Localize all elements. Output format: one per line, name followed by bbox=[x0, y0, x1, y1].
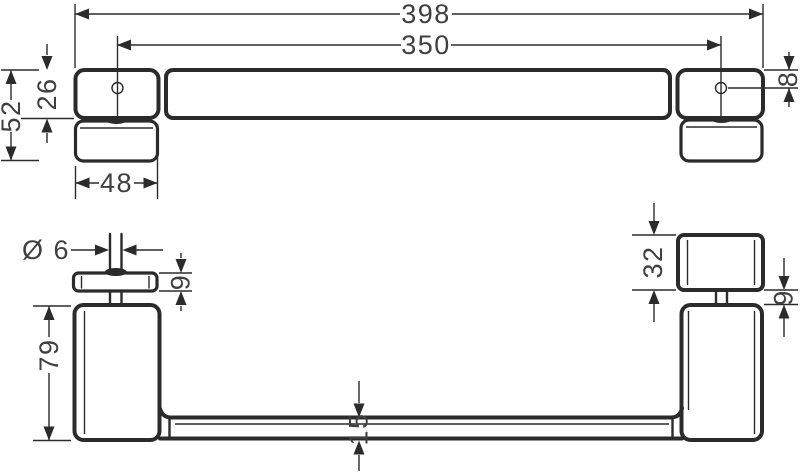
technical-drawing: 398 350 8 bbox=[0, 0, 800, 476]
arrow-left bbox=[123, 245, 137, 256]
arrow-up bbox=[44, 306, 55, 320]
arrow-down bbox=[784, 56, 795, 70]
arrow-right bbox=[707, 40, 721, 51]
dim-hole-spacing-label: 350 bbox=[401, 30, 451, 60]
dim-bar-depth-label: 26 bbox=[32, 77, 62, 110]
arrow-right bbox=[749, 9, 763, 20]
dim-knob-height: 32 bbox=[632, 203, 676, 322]
arrow-down bbox=[176, 259, 187, 273]
knob-cube bbox=[678, 235, 763, 290]
screw-notch bbox=[107, 117, 127, 124]
dim-post-height-label: 79 bbox=[34, 338, 64, 371]
right-mount-plate bbox=[681, 120, 762, 161]
arrow-up bbox=[42, 119, 53, 133]
arrow-up bbox=[176, 291, 187, 305]
dim-plate-width-label: 48 bbox=[100, 168, 133, 198]
left-post bbox=[75, 305, 160, 440]
dim-knob-height-label: 32 bbox=[638, 245, 668, 278]
arrow-down bbox=[42, 56, 53, 70]
dim-hole-offset-label: 8 bbox=[773, 71, 800, 88]
arrow-up bbox=[6, 70, 17, 84]
screw-notch bbox=[712, 116, 732, 123]
arrow-down bbox=[44, 427, 55, 441]
left-mount-plate bbox=[76, 121, 158, 161]
arrow-down bbox=[779, 276, 790, 290]
dim-overall-length-label: 398 bbox=[401, 0, 451, 29]
arrow-up bbox=[784, 88, 795, 102]
dim-screw-diameter: Ø 6 bbox=[22, 235, 163, 265]
handle-bar-plan bbox=[76, 70, 764, 161]
dim-post-height: 79 bbox=[33, 306, 71, 441]
dim-knob-gap-label: 9 bbox=[769, 289, 799, 306]
top-view: 398 350 8 bbox=[0, 0, 800, 199]
drawing-canvas: 398 350 8 bbox=[0, 0, 800, 476]
dim-hole-spacing: 350 bbox=[117, 30, 721, 117]
arrow-up bbox=[649, 290, 660, 304]
dim-knob-gap: 9 bbox=[764, 258, 799, 337]
dim-bar-depth: 26 bbox=[21, 44, 74, 143]
dim-bar-thickness-label: 15 bbox=[344, 412, 374, 445]
dim-flange-thickness: 9 bbox=[159, 253, 196, 311]
arrow-down bbox=[6, 147, 17, 161]
arrow-down bbox=[649, 221, 660, 235]
right-post bbox=[682, 305, 763, 440]
front-view: Ø 6 9 79 15 bbox=[22, 203, 799, 471]
bar-body bbox=[166, 70, 670, 118]
arrow-left bbox=[76, 178, 90, 189]
arrow-right bbox=[144, 178, 158, 189]
dim-total-depth-label: 52 bbox=[0, 99, 26, 132]
arrow-left bbox=[117, 40, 131, 51]
arrow-left bbox=[75, 9, 89, 20]
dim-bar-thickness: 15 bbox=[344, 381, 374, 471]
arrow-right bbox=[95, 245, 109, 256]
dim-screw-diameter-label: Ø 6 bbox=[22, 235, 70, 265]
bar-top-edge bbox=[160, 409, 682, 418]
dim-flange-thickness-label: 9 bbox=[166, 274, 196, 291]
